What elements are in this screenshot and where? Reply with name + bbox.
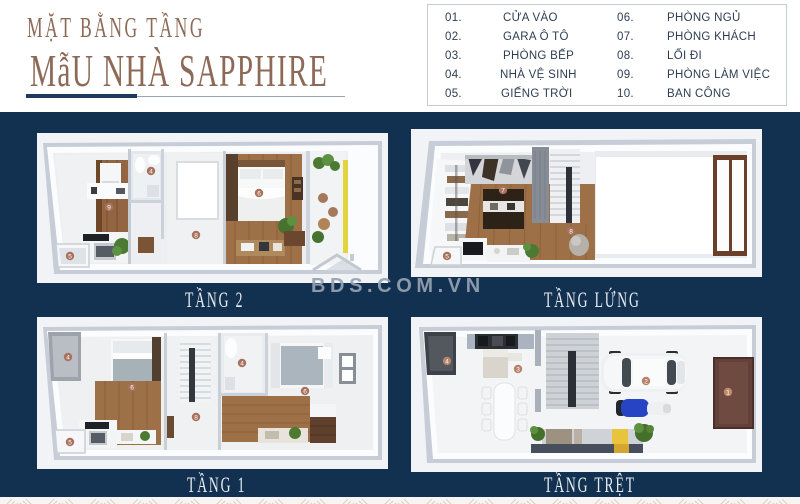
svg-text:5: 5 [445,254,449,261]
svg-text:4: 4 [66,355,70,362]
svg-text:7: 7 [501,188,505,195]
svg-text:4: 4 [149,169,153,176]
svg-text:5: 5 [68,254,72,261]
svg-text:8: 8 [194,415,198,422]
svg-text:8: 8 [569,229,573,236]
svg-text:4: 4 [445,359,449,366]
svg-text:2: 2 [644,379,648,386]
svg-text:5: 5 [68,440,72,447]
svg-text:3: 3 [516,367,520,374]
svg-text:8: 8 [194,233,198,240]
svg-text:6: 6 [303,389,307,396]
svg-text:9: 9 [107,205,111,212]
svg-text:6: 6 [257,191,261,198]
svg-text:1: 1 [726,390,730,397]
svg-text:4: 4 [240,361,244,368]
svg-text:6: 6 [130,385,134,392]
